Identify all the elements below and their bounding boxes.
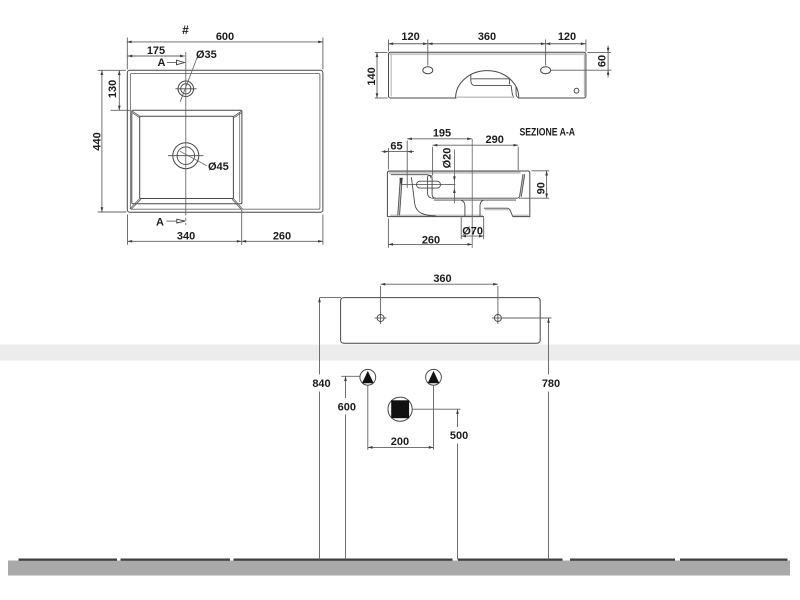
svg-text:A: A [156,216,164,228]
svg-text:260: 260 [273,230,291,242]
svg-text:90: 90 [536,182,548,194]
svg-text:290: 290 [486,134,504,146]
svg-text:Ø45: Ø45 [208,161,229,173]
svg-text:360: 360 [433,273,451,285]
svg-text:840: 840 [312,378,330,390]
svg-text:600: 600 [216,31,234,43]
svg-text:440: 440 [91,132,103,150]
svg-text:340: 340 [177,230,195,242]
svg-text:120: 120 [558,31,576,43]
svg-text:200: 200 [391,436,409,448]
svg-text:360: 360 [478,31,496,43]
svg-text:SEZIONE A-A: SEZIONE A-A [520,126,576,138]
svg-text:175: 175 [147,45,165,57]
svg-text:120: 120 [401,31,419,43]
svg-text:500: 500 [450,430,468,442]
svg-text:60: 60 [596,55,608,67]
svg-text:195: 195 [433,128,451,140]
svg-text:Ø35: Ø35 [196,49,217,61]
svg-text:780: 780 [542,378,560,390]
svg-text:#: # [182,23,189,37]
svg-text:260: 260 [422,234,440,246]
svg-text:Ø20: Ø20 [442,148,454,169]
svg-text:140: 140 [366,67,378,85]
svg-text:Ø70: Ø70 [462,225,483,237]
svg-text:130: 130 [107,80,119,98]
svg-text:600: 600 [338,401,356,413]
svg-text:A: A [158,57,166,69]
svg-text:65: 65 [390,141,402,153]
